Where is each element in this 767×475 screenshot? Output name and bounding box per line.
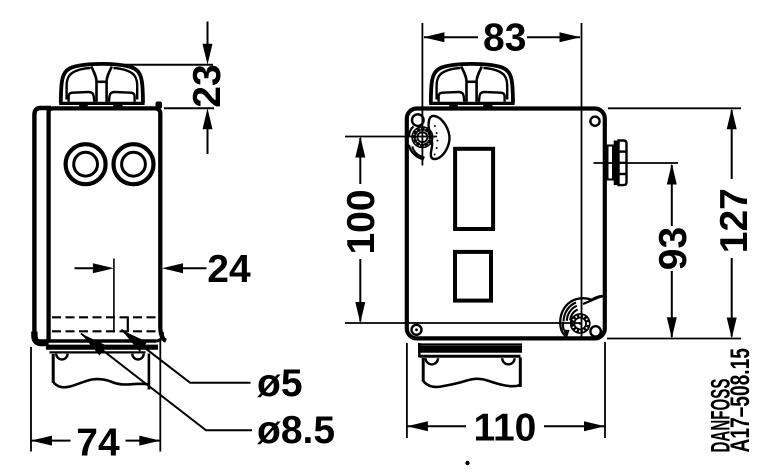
svg-text:ø8.5: ø8.5 (257, 409, 335, 452)
svg-text:A17–508.15: A17–508.15 (725, 348, 755, 452)
svg-text:23: 23 (186, 64, 229, 107)
svg-text:83: 83 (483, 17, 526, 60)
svg-text:127: 127 (713, 188, 756, 253)
svg-text:93: 93 (652, 227, 695, 270)
svg-text:24: 24 (207, 248, 251, 291)
svg-text:110: 110 (473, 407, 536, 450)
svg-text:74: 74 (76, 422, 120, 465)
svg-text:ø5: ø5 (257, 362, 303, 405)
svg-text:100: 100 (340, 189, 383, 254)
